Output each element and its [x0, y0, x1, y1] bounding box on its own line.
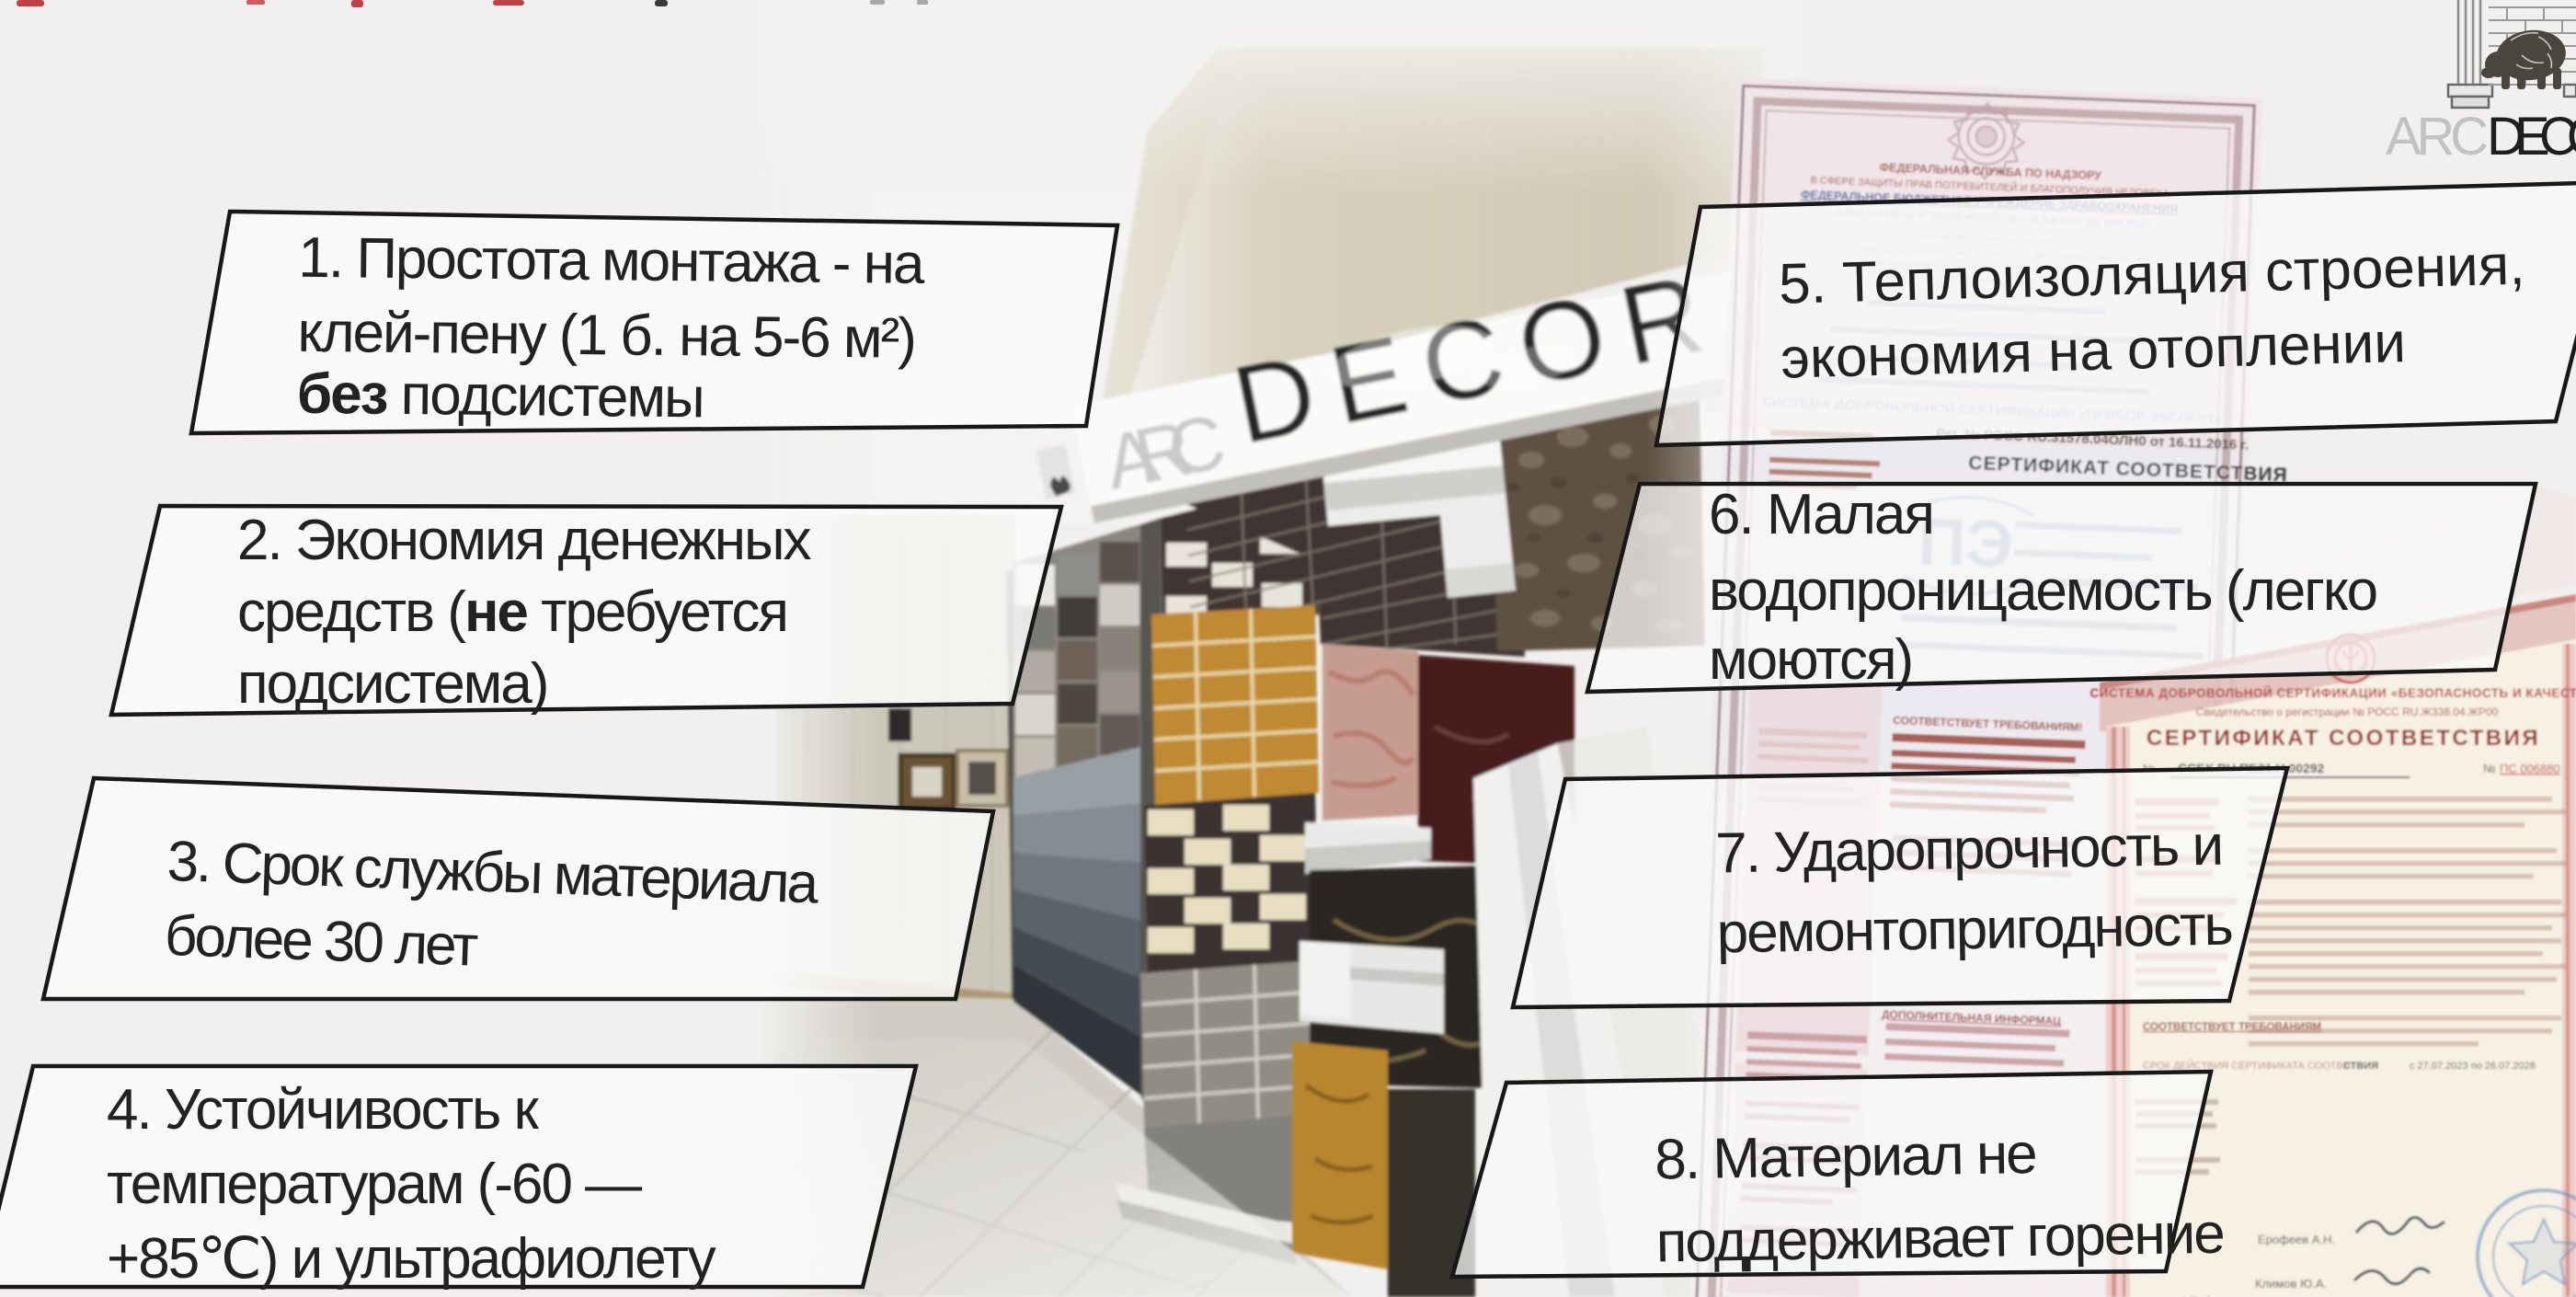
- svg-text:4. Устойчивость к: 4. Устойчивость к: [107, 1078, 540, 1142]
- svg-text:ПС 006880: ПС 006880: [2500, 762, 2560, 775]
- svg-text:ремонтопригодность: ремонтопригодность: [1716, 894, 2232, 966]
- svg-text:поддерживает горение: поддерживает горение: [1655, 1202, 2224, 1275]
- svg-text:клей-пену (1 б. на 5-6 м²): клей-пену (1 б. на 5-6 м²): [297, 301, 915, 371]
- svg-text:Свидетельство о регистрации №: Свидетельство о регистрации № РОСС RU.Ж3…: [2196, 706, 2499, 718]
- svg-text:8. Материал не: 8. Материал не: [1654, 1122, 2036, 1191]
- svg-text:№: №: [2483, 762, 2496, 775]
- svg-text:средств (не требуется: средств (не требуется: [237, 580, 787, 644]
- svg-text:СЕРТИФИКАТ СООТВЕТСТВИЯ: СЕРТИФИКАТ СООТВЕТСТВИЯ: [2147, 726, 2540, 751]
- svg-text:6. Малая: 6. Малая: [1709, 483, 1933, 546]
- svg-text:DECOR: DECOR: [2487, 107, 2576, 166]
- svg-text:с 27.07.2023 по 26.07.2028: с 27.07.2023 по 26.07.2028: [2410, 1061, 2536, 1072]
- svg-text:ARC: ARC: [2386, 107, 2489, 166]
- svg-text:СТВИЯ: СТВИЯ: [2343, 1061, 2378, 1072]
- svg-text:2. Экономия денежных: 2. Экономия денежных: [237, 509, 812, 572]
- svg-text:+85℃) и ультрафиолету: +85℃) и ультрафиолету: [107, 1227, 716, 1291]
- svg-text:водопроницаемость (легко: водопроницаемость (легко: [1709, 559, 2376, 623]
- svg-text:температурам (-60 —: температурам (-60 —: [107, 1153, 642, 1216]
- svg-text:без подсистемы: без подсистемы: [297, 362, 704, 430]
- svg-text:Климов Ю.А.: Климов Ю.А.: [2255, 1277, 2327, 1291]
- svg-text:Ерофеев А.Н.: Ерофеев А.Н.: [2258, 1233, 2335, 1246]
- svg-text:моются): моются): [1709, 628, 1912, 692]
- svg-text:7. Ударопрочность и: 7. Ударопрочность и: [1715, 814, 2223, 886]
- svg-text:СРОК ДЕЙСТВИЯ СЕРТИФИКАТА СООТ: СРОК ДЕЙСТВИЯ СЕРТИФИКАТА СООТВЕТ: [2143, 1060, 2356, 1072]
- svg-text:подсистема): подсистема): [237, 652, 547, 716]
- svg-text:1. Простота монтажа - на: 1. Простота монтажа - на: [298, 226, 925, 296]
- svg-text:СИСТЕМА ДОБРОВОЛЬНОЙ СЕРТИФИКА: СИСТЕМА ДОБРОВОЛЬНОЙ СЕРТИФИКАЦИИ «БЕЗОП…: [2090, 686, 2576, 700]
- svg-text:более 30 лет: более 30 лет: [164, 904, 479, 979]
